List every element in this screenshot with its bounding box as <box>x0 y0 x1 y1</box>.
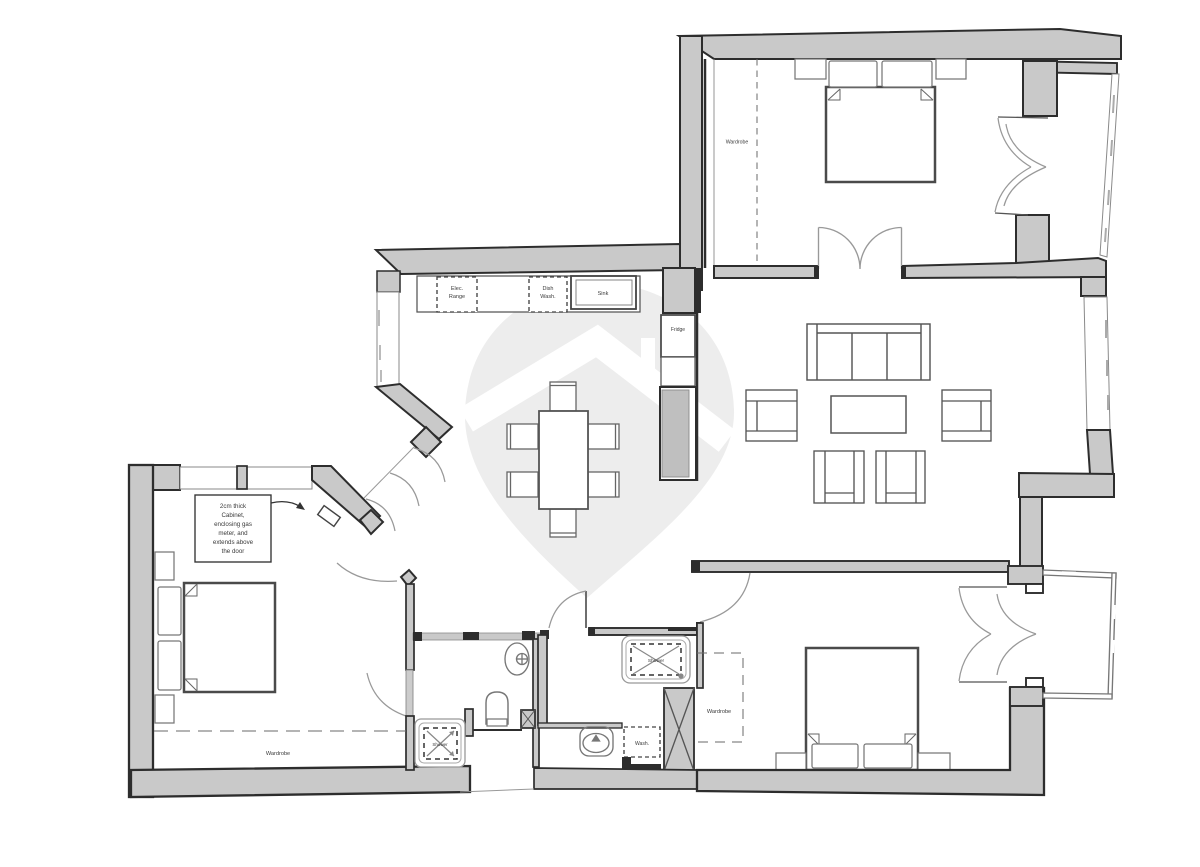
svg-text:Dish: Dish <box>542 286 553 292</box>
svg-text:Sink: Sink <box>598 291 609 297</box>
svg-text:Cabinet,: Cabinet, <box>221 512 244 519</box>
svg-text:Fridge: Fridge <box>671 327 685 333</box>
svg-text:meter, and: meter, and <box>218 530 248 537</box>
svg-text:Shower: Shower <box>432 742 448 747</box>
svg-text:the door: the door <box>222 548 245 555</box>
svg-text:Wash.: Wash. <box>540 294 556 300</box>
svg-text:extends above: extends above <box>213 539 254 546</box>
svg-text:Range: Range <box>449 294 465 300</box>
svg-text:Wardrobe: Wardrobe <box>266 751 290 757</box>
svg-text:enclosing gas: enclosing gas <box>214 521 252 528</box>
svg-text:2cm thick: 2cm thick <box>220 503 247 510</box>
svg-text:Shower: Shower <box>648 658 665 664</box>
svg-text:Wardrobe: Wardrobe <box>726 140 749 146</box>
svg-text:Wash.: Wash. <box>635 741 649 747</box>
svg-text:Elec.: Elec. <box>451 286 464 292</box>
svg-text:Wardrobe: Wardrobe <box>707 709 731 715</box>
